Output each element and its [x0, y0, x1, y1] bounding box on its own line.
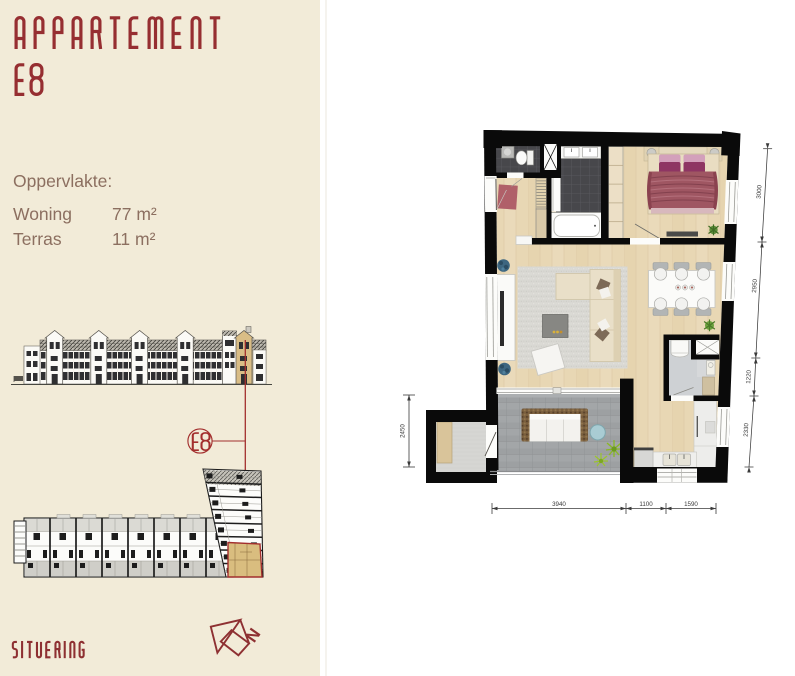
svg-text:3940: 3940	[552, 501, 566, 508]
svg-text:1590: 1590	[684, 501, 698, 508]
svg-text:Oppervlakte:: Oppervlakte:	[13, 171, 112, 191]
svg-text:2950: 2950	[751, 278, 759, 293]
svg-text:1100: 1100	[639, 501, 653, 508]
svg-text:2330: 2330	[743, 422, 751, 437]
svg-text:Woning: Woning	[13, 204, 72, 224]
svg-text:Terras: Terras	[13, 229, 62, 249]
svg-text:1220: 1220	[745, 369, 753, 384]
svg-text:77 m²: 77 m²	[112, 204, 157, 224]
svg-text:11 m²: 11 m²	[112, 229, 156, 249]
svg-text:2450: 2450	[400, 424, 407, 438]
svg-text:3000: 3000	[756, 184, 764, 199]
